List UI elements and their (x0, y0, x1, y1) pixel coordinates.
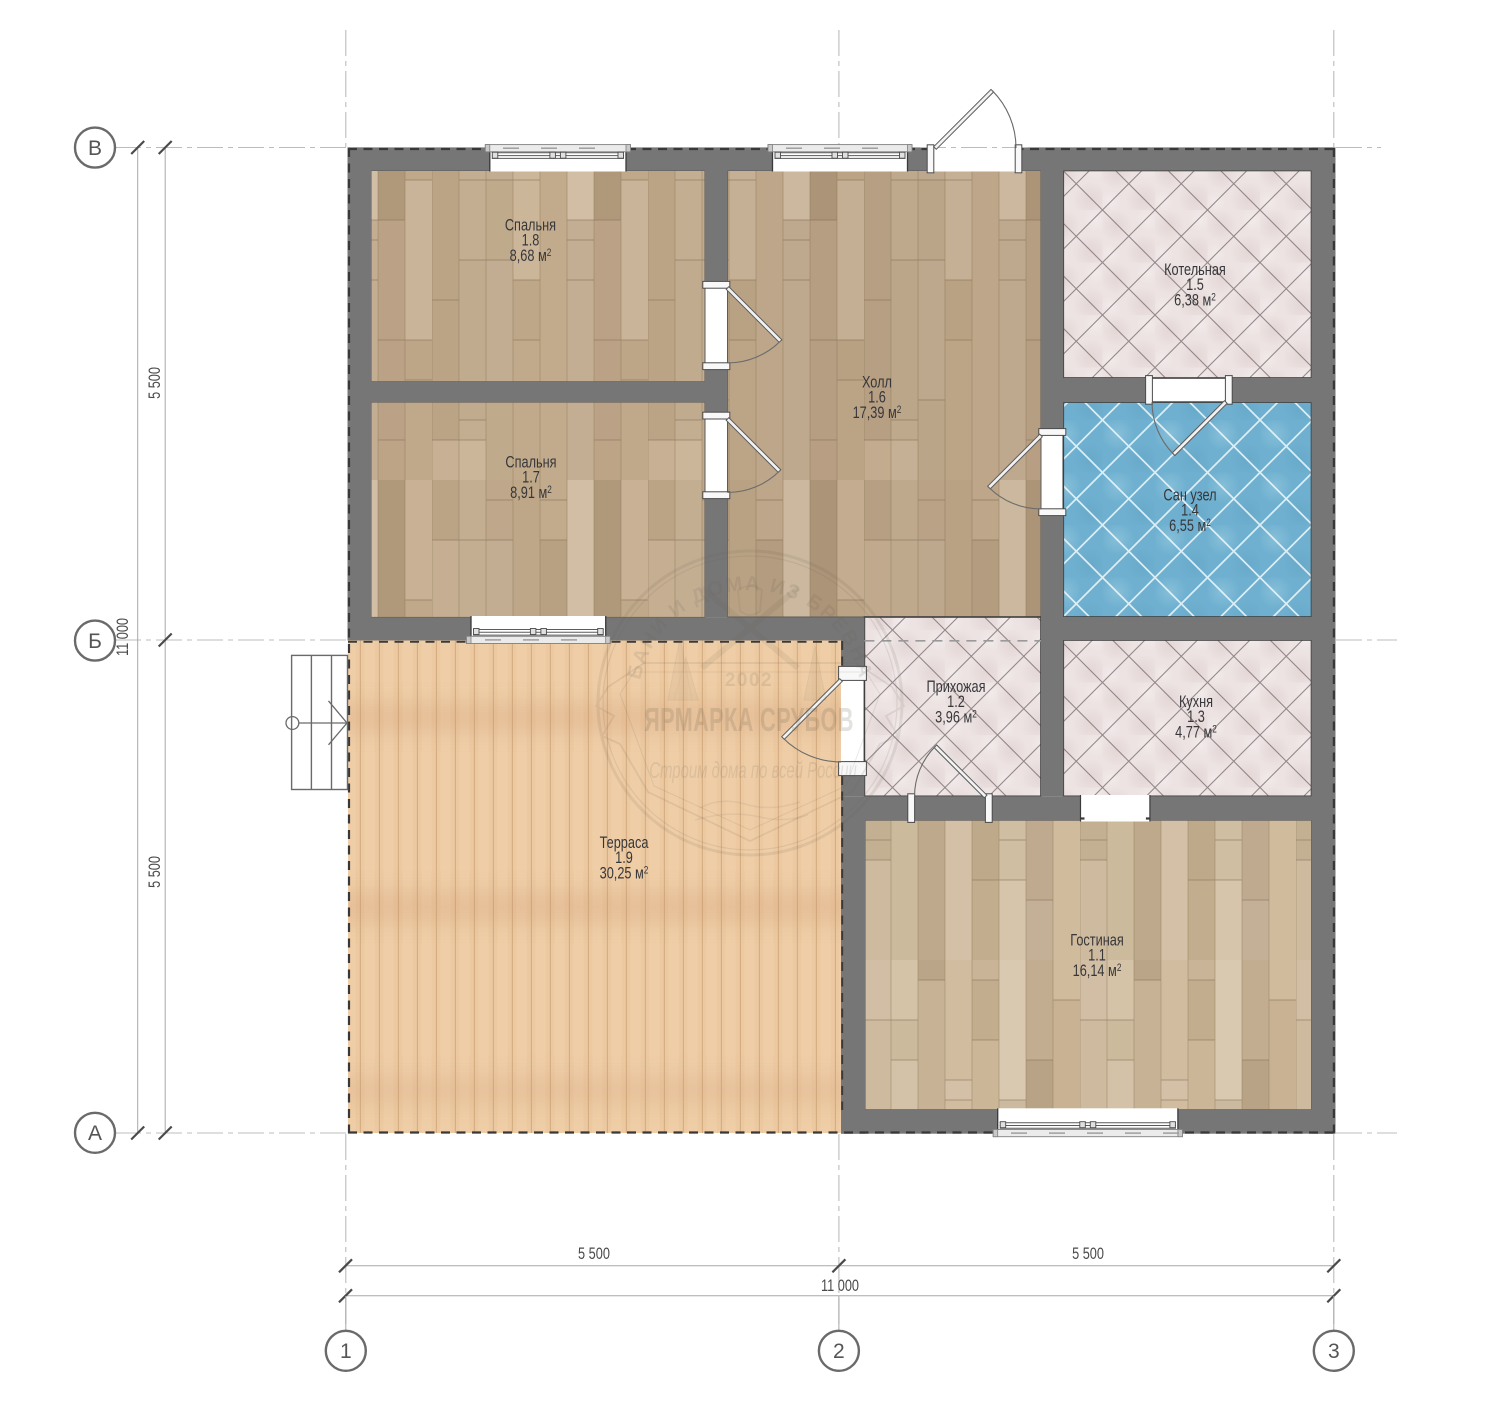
svg-text:5 500: 5 500 (1072, 1244, 1104, 1263)
svg-text:11 000: 11 000 (821, 1276, 859, 1295)
svg-text:А: А (88, 1122, 102, 1145)
svg-text:16,14 м2: 16,14 м2 (1073, 961, 1122, 980)
svg-text:6,38 м2: 6,38 м2 (1174, 291, 1216, 310)
svg-text:5 500: 5 500 (145, 367, 164, 399)
svg-text:4,77 м2: 4,77 м2 (1175, 723, 1217, 742)
svg-text:Строим дома по всей России: Строим дома по всей России (649, 758, 857, 784)
svg-text:3: 3 (1328, 1340, 1340, 1363)
svg-text:3,96 м2: 3,96 м2 (935, 708, 977, 727)
svg-text:2002: 2002 (725, 670, 773, 691)
svg-text:8,68 м2: 8,68 м2 (510, 246, 552, 265)
svg-text:В: В (88, 137, 102, 160)
svg-text:8,91 м2: 8,91 м2 (510, 483, 552, 502)
svg-text:2: 2 (833, 1340, 845, 1363)
svg-text:6,55 м2: 6,55 м2 (1169, 516, 1211, 535)
svg-text:5 500: 5 500 (578, 1244, 610, 1263)
svg-text:ЯРМАРКА СРУБОВ: ЯРМАРКА СРУБОВ (644, 701, 854, 738)
svg-text:11 000: 11 000 (113, 618, 132, 656)
svg-text:1: 1 (340, 1340, 352, 1363)
svg-text:30,25 м2: 30,25 м2 (600, 864, 649, 883)
svg-text:Б: Б (88, 630, 102, 653)
svg-text:5 500: 5 500 (145, 856, 164, 888)
svg-text:17,39 м2: 17,39 м2 (853, 403, 902, 422)
